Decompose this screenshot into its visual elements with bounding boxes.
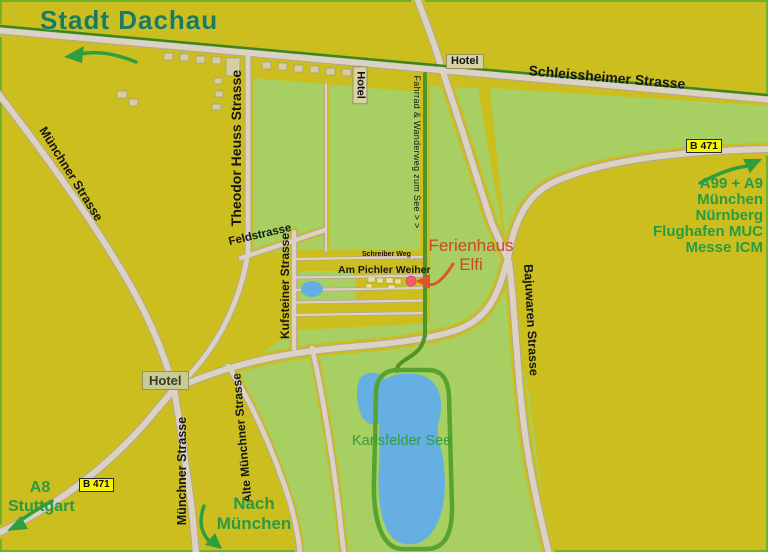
ferienhaus-label-line1: Ferienhaus — [428, 236, 514, 255]
directions-southwest: A8 Stuttgart — [8, 478, 72, 516]
directions-south: Nach München — [211, 494, 297, 534]
map-canvas: Stadt Dachau Schleissheimer Strasse Theo… — [0, 0, 768, 552]
dir-s-line1: Nach — [211, 494, 297, 514]
b471-badge-west: B 471 — [79, 478, 114, 492]
karlsfelder-see-label: Karlsfelder See — [352, 433, 451, 449]
dir-ne-line2: München — [645, 192, 763, 208]
label-kufsteiner-strasse: Kufsteiner Strasse — [278, 233, 292, 339]
pichler-weiher-pond — [301, 281, 323, 297]
hotel-badge-south: Hotel — [142, 371, 189, 390]
label-theodor-heuss-strasse: Theodor Heuss Strasse — [228, 70, 244, 226]
ferienhaus-elfi-label: Ferienhaus Elfi — [428, 236, 514, 274]
label-muenchner-strasse-s: Münchner Strasse — [175, 417, 189, 525]
arrow-to-dachau — [80, 53, 136, 62]
label-am-pichler-weiher: Am Pichler Weiher — [338, 264, 431, 276]
label-schreiber-weg: Schreiber Weg — [362, 251, 411, 258]
dir-sw-line2: Stuttgart — [8, 497, 72, 516]
hotel-badge-north: Hotel — [446, 54, 484, 69]
dir-s-line2: München — [211, 514, 297, 534]
hotel-badge-vertical: Hotel — [353, 66, 368, 104]
ferienhaus-label-line2: Elfi — [428, 255, 514, 274]
directions-northeast: A99 + A9 München Nürnberg Flughafen MUC … — [645, 176, 763, 256]
arrow-to-muenchen — [201, 506, 210, 542]
dir-ne-line4: Flughafen MUC — [645, 224, 763, 240]
ferienhaus-dot — [406, 276, 416, 286]
label-fahrrad-wanderweg: Fahrrad & Wanderweg zum See > > — [412, 75, 422, 228]
dir-ne-line3: Nürnberg — [645, 208, 763, 224]
map-title: Stadt Dachau — [40, 5, 218, 36]
dir-ne-line5: Messe ICM — [645, 240, 763, 256]
b471-badge-east: B 471 — [686, 139, 722, 153]
dir-ne-line1: A99 + A9 — [645, 176, 763, 192]
arrow-to-dachau-head — [64, 46, 84, 63]
dir-sw-line1: A8 — [8, 478, 72, 497]
